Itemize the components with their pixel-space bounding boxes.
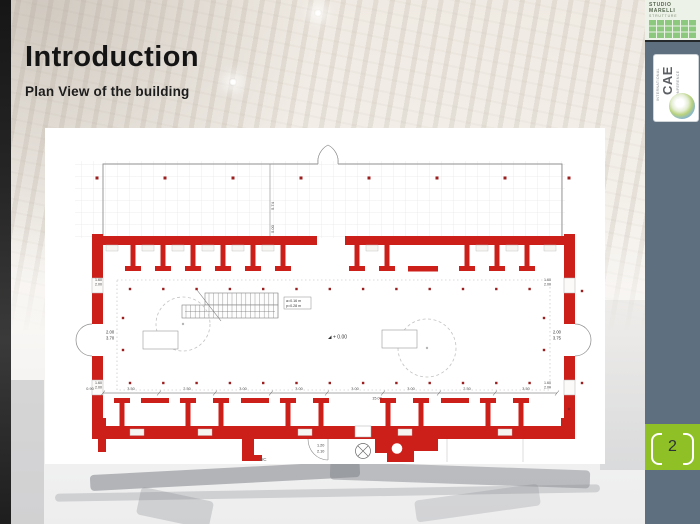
wall-pier-cap [379,266,395,271]
dimension-label: 15.00 [372,397,382,401]
wall-stub [98,439,106,452]
wall-pier-cap [215,266,231,271]
window-slot [262,245,274,251]
wall-pier-cap [413,398,429,403]
window-slot [172,245,184,251]
wall-pier [355,245,360,268]
wall-dash [408,266,438,272]
wall-pier [386,403,391,426]
column-dot [395,288,397,290]
window-slot [498,429,512,436]
wall-pier [191,245,196,268]
window-slot [544,245,556,251]
column-dot [528,382,530,384]
wall-pier-cap [275,266,291,271]
right-wall [564,293,575,324]
column-dot [229,288,231,290]
column-dot [329,382,331,384]
dimension-label: 5.74 [270,201,275,210]
tech-room-hole [392,443,403,454]
wall-pier [465,245,470,268]
wall-pier [186,403,191,426]
wall-pier-cap [380,398,396,403]
wall-pier [525,245,530,268]
portico-column-dot [504,177,507,180]
column-dot [581,382,583,384]
wall-pier-cap [513,398,529,403]
stairs-note-line1: a=0.16 m [286,299,301,303]
studio-logo-squares [649,19,696,38]
wall-pier [281,245,286,268]
wall-pier-cap [489,266,505,271]
wall-pier [161,245,166,268]
column-dot [329,288,331,290]
window-slot [130,429,144,436]
wall-pier [385,245,390,268]
slide: Introduction Plan View of the building 5… [0,0,700,524]
window-slot [298,429,312,436]
top-wall [345,236,575,245]
column-dot [122,349,124,351]
wall-pier-cap [180,398,196,403]
wc-door-width: 1.20 [317,444,324,448]
right-door-swing [575,324,591,356]
level-marker-label: + 0.00 [333,335,347,341]
wall-pier-cap [155,266,171,271]
column-dot [581,290,583,292]
wall-pier-cap [114,398,130,403]
column-dot [429,288,431,290]
portico-column-dot [568,177,571,180]
cae-conference-logo: INTERNATIONAL CAE CONFERENCE [653,54,699,122]
left-door-width: 2.00 [106,330,115,335]
column-dot [262,382,264,384]
machine-center-dot [182,323,184,325]
portico-column-dot [232,177,235,180]
window-slot [366,245,378,251]
dimension-label: 0.90 [86,387,93,391]
wall-pier-cap [313,398,329,403]
dimension-label: 2.00 [95,386,102,390]
dimension-label: 5.00 [270,224,275,233]
column-dot [429,382,431,384]
wall-pier [495,245,500,268]
column-dot [195,288,197,290]
dimension-label: 3.00 [295,387,302,391]
column-dot [262,288,264,290]
right-wall-window [564,380,575,395]
column-dot [462,288,464,290]
window-slot [232,245,244,251]
floor-plan-canvas: 5.745.001.602.001.602.001.602.001.602.00… [45,128,605,464]
window-slot [506,245,518,251]
dimension-label: 1.60 [95,381,102,385]
bracket-left-icon [651,433,662,465]
left-door-swing [76,324,92,356]
machine-center-dot [426,347,428,349]
column-dot [162,382,164,384]
dimension-label: 2.50 [463,387,470,391]
tech-room [375,439,438,462]
dimension-label: 2.00 [95,283,102,287]
dimension-label: 3.00 [239,387,246,391]
right-wall-window [564,278,575,293]
dimension-label: 3.50 [522,387,529,391]
window-slot [198,429,212,436]
window-slot [476,245,488,251]
dimension-label: 2.50 [183,387,190,391]
window-slot [202,245,214,251]
lamp-glow [314,9,322,17]
portico-column-dot [164,177,167,180]
dimension-label: 1.60 [95,278,102,282]
cae-globe-icon [669,93,695,119]
wall-pier [519,403,524,426]
page-number-box: 2 [645,424,700,470]
wall-pier [120,403,125,426]
wall-dash [141,398,169,403]
wall-dash [241,398,269,403]
bracket-right-icon [683,433,694,465]
wall-pier-cap [459,266,475,271]
portico-column-dot [300,177,303,180]
right-wall [564,395,575,439]
slide-subtitle: Plan View of the building [25,84,190,99]
wall-pier [286,403,291,426]
level-marker-icon [328,336,332,340]
column-dot [568,408,570,410]
top-wall [92,236,317,245]
column-dot [129,288,131,290]
right-door-width: 2.00 [553,330,562,335]
column-dot [129,382,131,384]
left-door-height: 3.70 [106,336,115,341]
wc-label: WC [259,457,267,462]
portico-column-dot [368,177,371,180]
column-dot [495,382,497,384]
column-dot [362,288,364,290]
left-wall [92,293,103,324]
column-dot [362,382,364,384]
dimension-label: 3.00 [351,387,358,391]
window-slot [106,245,118,251]
right-door-height: 3.75 [553,336,562,341]
stairs-upper-flight [205,293,278,305]
photo-dark-edge [0,0,11,524]
equipment-table-left [143,331,178,349]
portico-column-dot [96,177,99,180]
column-dot [295,288,297,290]
page-number: 2 [668,438,677,456]
dimension-label: 3.00 [407,387,414,391]
right-wall [564,356,575,380]
wall-pier [219,403,224,426]
column-dot [495,288,497,290]
column-dot [162,288,164,290]
column-dot [528,288,530,290]
portico-column-dot [436,177,439,180]
left-wall [92,356,103,380]
page-title: Introduction [25,41,199,74]
floor-plan-image: 5.745.001.602.001.602.001.602.001.602.00… [45,128,605,464]
column-dot [462,382,464,384]
wall-pier [486,403,491,426]
dimension-label: 3.50 [127,387,134,391]
column-dot [295,382,297,384]
wall-dash [441,398,469,403]
column-dot [543,349,545,351]
wall-pier-cap [213,398,229,403]
wall-pier [319,403,324,426]
wc-door-height: 2.10 [317,450,324,454]
column-dot [195,382,197,384]
window-slot [142,245,154,251]
wall-pier-cap [280,398,296,403]
wall-pier-cap [480,398,496,403]
column-dot [395,382,397,384]
lamp-glow [229,78,237,86]
wall-pier [419,403,424,426]
left-wall [92,234,103,278]
wall-pier-cap [185,266,201,271]
bottom-wall-opening [355,426,371,437]
studio-logo: STUDIO MARELLI STRUTTURE [645,0,700,40]
wall-pier [221,245,226,268]
right-wall [564,234,575,278]
window-slot [398,429,412,436]
cae-logo-acronym: CAE [660,66,675,95]
left-wall [92,395,103,439]
column-dot [229,382,231,384]
wall-pier-cap [519,266,535,271]
wall-pier-cap [349,266,365,271]
stairs-note-line2: p=0.28 m [286,304,301,308]
wall-pier [131,245,136,268]
portico-grid [75,161,565,238]
wall-pier-cap [245,266,261,271]
column-dot [122,317,124,319]
wall-pier-cap [125,266,141,271]
wall-pier [251,245,256,268]
column-dot [543,317,545,319]
equipment-table-right [382,330,417,348]
studio-logo-line3: STRUTTURE [649,14,677,18]
